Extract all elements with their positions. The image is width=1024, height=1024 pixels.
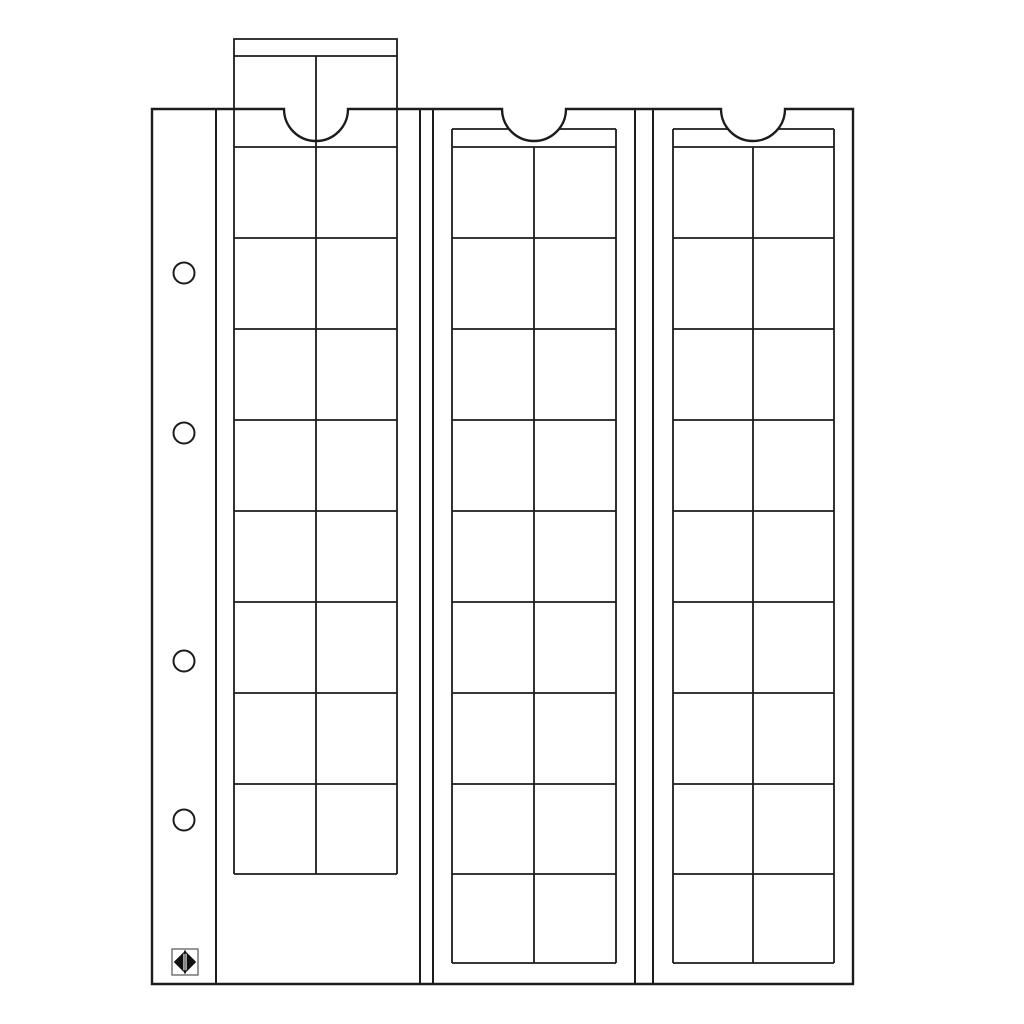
page-outline-with-thumb-notches: [152, 109, 853, 984]
slot-seam-lines: [420, 109, 653, 984]
coin-strip-1: [234, 39, 397, 874]
coin-strip-2: [452, 129, 616, 963]
binder-holes-group: [174, 263, 195, 831]
coin-strip-3: [673, 129, 834, 963]
binder-hole: [174, 810, 195, 831]
binder-hole: [174, 423, 195, 444]
coin-album-sheet-drawing: [0, 0, 1024, 1024]
page-inner-lines-group: [216, 109, 653, 984]
binder-hole: [174, 263, 195, 284]
page-outline-group: [152, 109, 853, 984]
line-drawing-canvas: [0, 0, 1024, 1024]
binder-hole: [174, 651, 195, 672]
diamond-compass-logo: [172, 949, 198, 975]
